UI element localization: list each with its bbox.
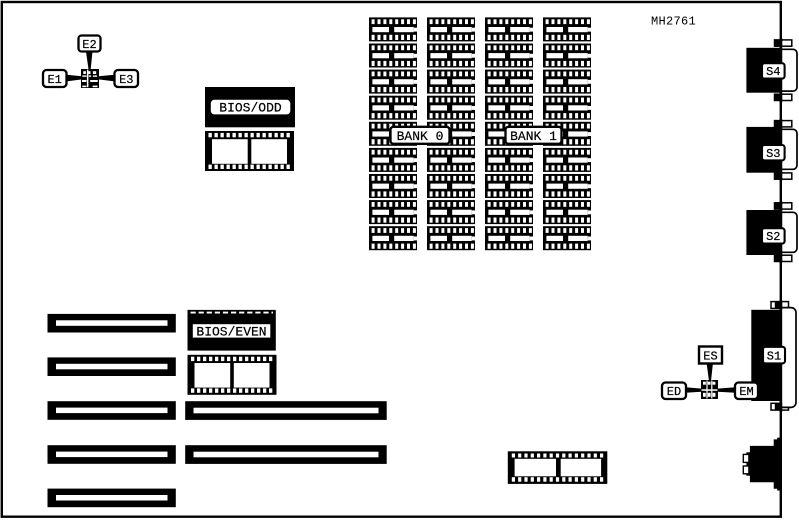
svg-text:BANK 0: BANK 0 — [397, 129, 444, 144]
svg-text:EM: EM — [739, 385, 753, 399]
svg-text:S3: S3 — [766, 147, 780, 161]
svg-text:BIOS/EVEN: BIOS/EVEN — [196, 324, 266, 339]
svg-text:S4: S4 — [766, 65, 780, 79]
svg-text:MH2761: MH2761 — [651, 15, 696, 29]
svg-text:BANK 1: BANK 1 — [510, 129, 557, 144]
svg-text:ES: ES — [703, 349, 717, 363]
svg-text:E3: E3 — [119, 73, 133, 87]
svg-text:S1: S1 — [767, 350, 781, 364]
svg-text:ED: ED — [667, 385, 681, 399]
svg-text:E2: E2 — [82, 38, 96, 52]
svg-text:BIOS/ODD: BIOS/ODD — [219, 101, 282, 116]
svg-text:E1: E1 — [47, 73, 61, 87]
svg-text:S2: S2 — [766, 230, 780, 244]
